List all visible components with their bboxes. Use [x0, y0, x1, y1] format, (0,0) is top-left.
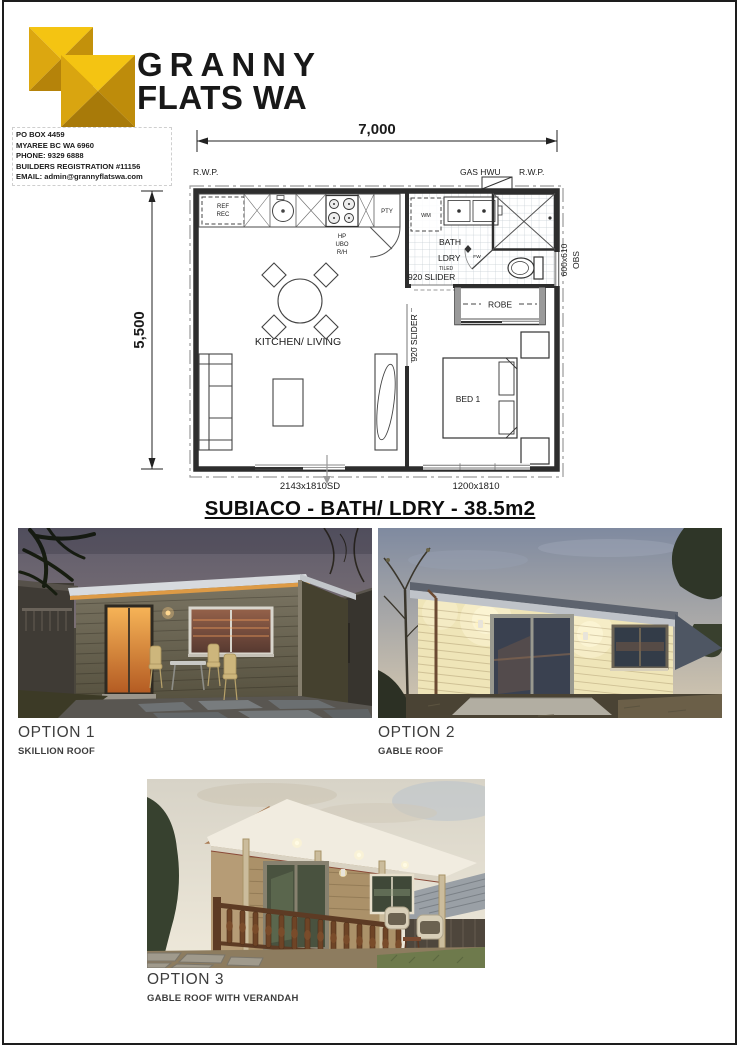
- floor-plan: 7,000 5,500 R.W.P. GAS HWU R.W.P.: [130, 118, 590, 496]
- option-2-subtitle: GABLE ROOF: [378, 746, 455, 757]
- door-size-label: 2143x1810SD: [280, 481, 340, 492]
- option-1-label-block: OPTION 1 SKILLION ROOF: [18, 724, 95, 757]
- washing-machine: WM: [411, 198, 441, 231]
- option-2-photo: [378, 528, 722, 718]
- option-3-subtitle: GABLE ROOF WITH VERANDAH: [147, 993, 299, 1004]
- svg-text:WM: WM: [421, 213, 431, 219]
- bedroom-window-opening: [423, 463, 530, 469]
- rwp-right-label: R.W.P.: [519, 167, 544, 177]
- ubo-label: UBO: [335, 242, 348, 248]
- option-3-photo: [147, 779, 485, 968]
- robe: ROBE: [455, 288, 545, 325]
- bedside-table-top: [521, 332, 549, 358]
- granny-flats-logo-icon: [27, 25, 137, 129]
- gas-hwu-unit: [482, 177, 512, 189]
- rh-label: R/H: [337, 250, 347, 256]
- obs-size-label: 600x610: [559, 243, 569, 276]
- rwp-left-label: R.W.P.: [193, 167, 218, 177]
- brand-name: GRANNY FLATS WA: [137, 48, 322, 114]
- logo-diamond-bottom-right: [61, 55, 135, 127]
- svg-text:REF: REF: [217, 204, 229, 210]
- bath-slider-label: 920 SLIDER: [408, 272, 455, 282]
- option-3-title: OPTION 3: [147, 971, 299, 989]
- dim-width-text: 7,000: [358, 121, 396, 138]
- bed1-label: BED 1: [456, 394, 481, 404]
- cooktop: [326, 196, 358, 227]
- dim-height-text: 5,500: [131, 311, 148, 349]
- option-1-title: OPTION 1: [18, 724, 95, 742]
- fridge-recess: REF REC: [202, 197, 244, 224]
- bed-slider-label: 920 SLIDER: [409, 314, 419, 361]
- option-1-photo: [18, 528, 372, 718]
- concrete-pad: [452, 698, 612, 715]
- coffee-table: [273, 379, 303, 426]
- sofa: [199, 354, 232, 450]
- gas-hwu-label: GAS HWU: [460, 167, 501, 177]
- pty-label: PTY: [381, 209, 393, 215]
- glass-sliding-door: [490, 614, 574, 698]
- obs-label: OBS: [571, 251, 581, 269]
- toilet: [508, 257, 543, 279]
- svg-text:ROBE: ROBE: [488, 300, 512, 310]
- bedside-table-bottom: [521, 438, 549, 464]
- kitchen-living-label: KITCHEN/ LIVING: [255, 336, 341, 348]
- option-3-label-block: OPTION 3 GABLE ROOF WITH VERANDAH: [147, 971, 299, 1004]
- option-2-label-block: OPTION 2 GABLE ROOF: [378, 724, 455, 757]
- option-1-subtitle: SKILLION ROOF: [18, 746, 95, 757]
- front-window: [610, 626, 668, 671]
- hp-label: HP: [338, 234, 346, 240]
- option-2-title: OPTION 2: [378, 724, 455, 742]
- brand-line1: GRANNY: [137, 48, 322, 81]
- svg-text:FW: FW: [473, 254, 481, 260]
- bath-label: BATH: [439, 237, 461, 247]
- brochure-page: GRANNY FLATS WA PO BOX 4459 MYAREE BC WA…: [0, 0, 740, 1050]
- brand-line2: FLATS WA: [137, 81, 322, 114]
- window-size-label: 1200x1810: [452, 481, 499, 492]
- granny-flat-render: [68, 574, 356, 708]
- svg-text:REC: REC: [217, 212, 230, 218]
- tv-unit: [373, 354, 398, 450]
- ldry-label: LDRY: [438, 253, 461, 263]
- plan-title: SUBIACO - BATH/ LDRY - 38.5m2: [0, 497, 740, 521]
